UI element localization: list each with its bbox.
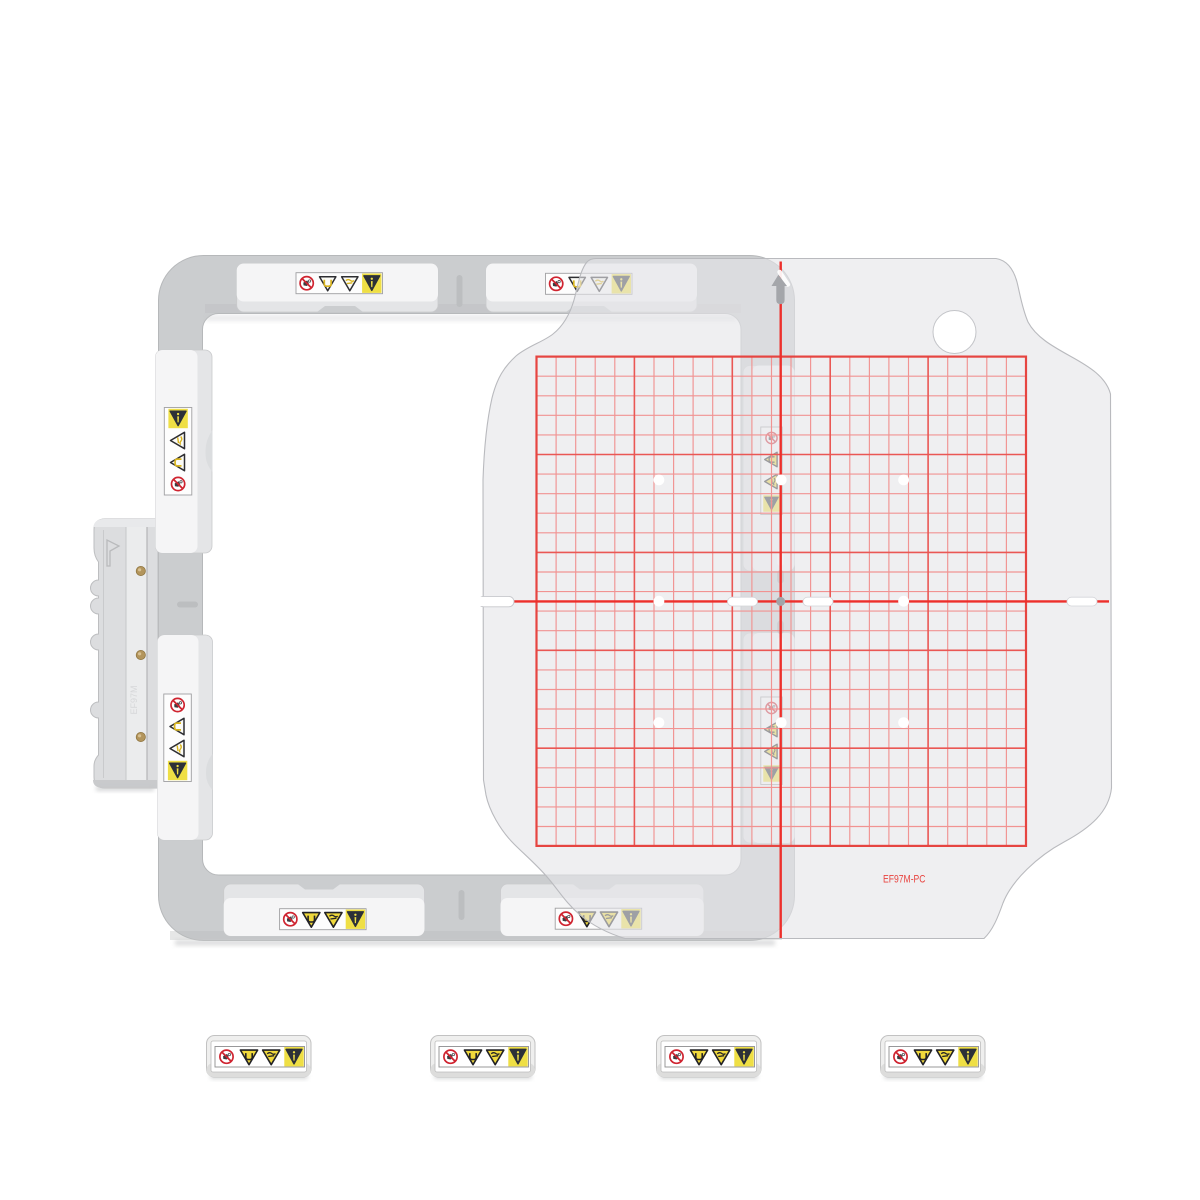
svg-text:EF97M: EF97M bbox=[129, 685, 139, 714]
svg-text:EF97M-PC: EF97M-PC bbox=[883, 874, 926, 886]
